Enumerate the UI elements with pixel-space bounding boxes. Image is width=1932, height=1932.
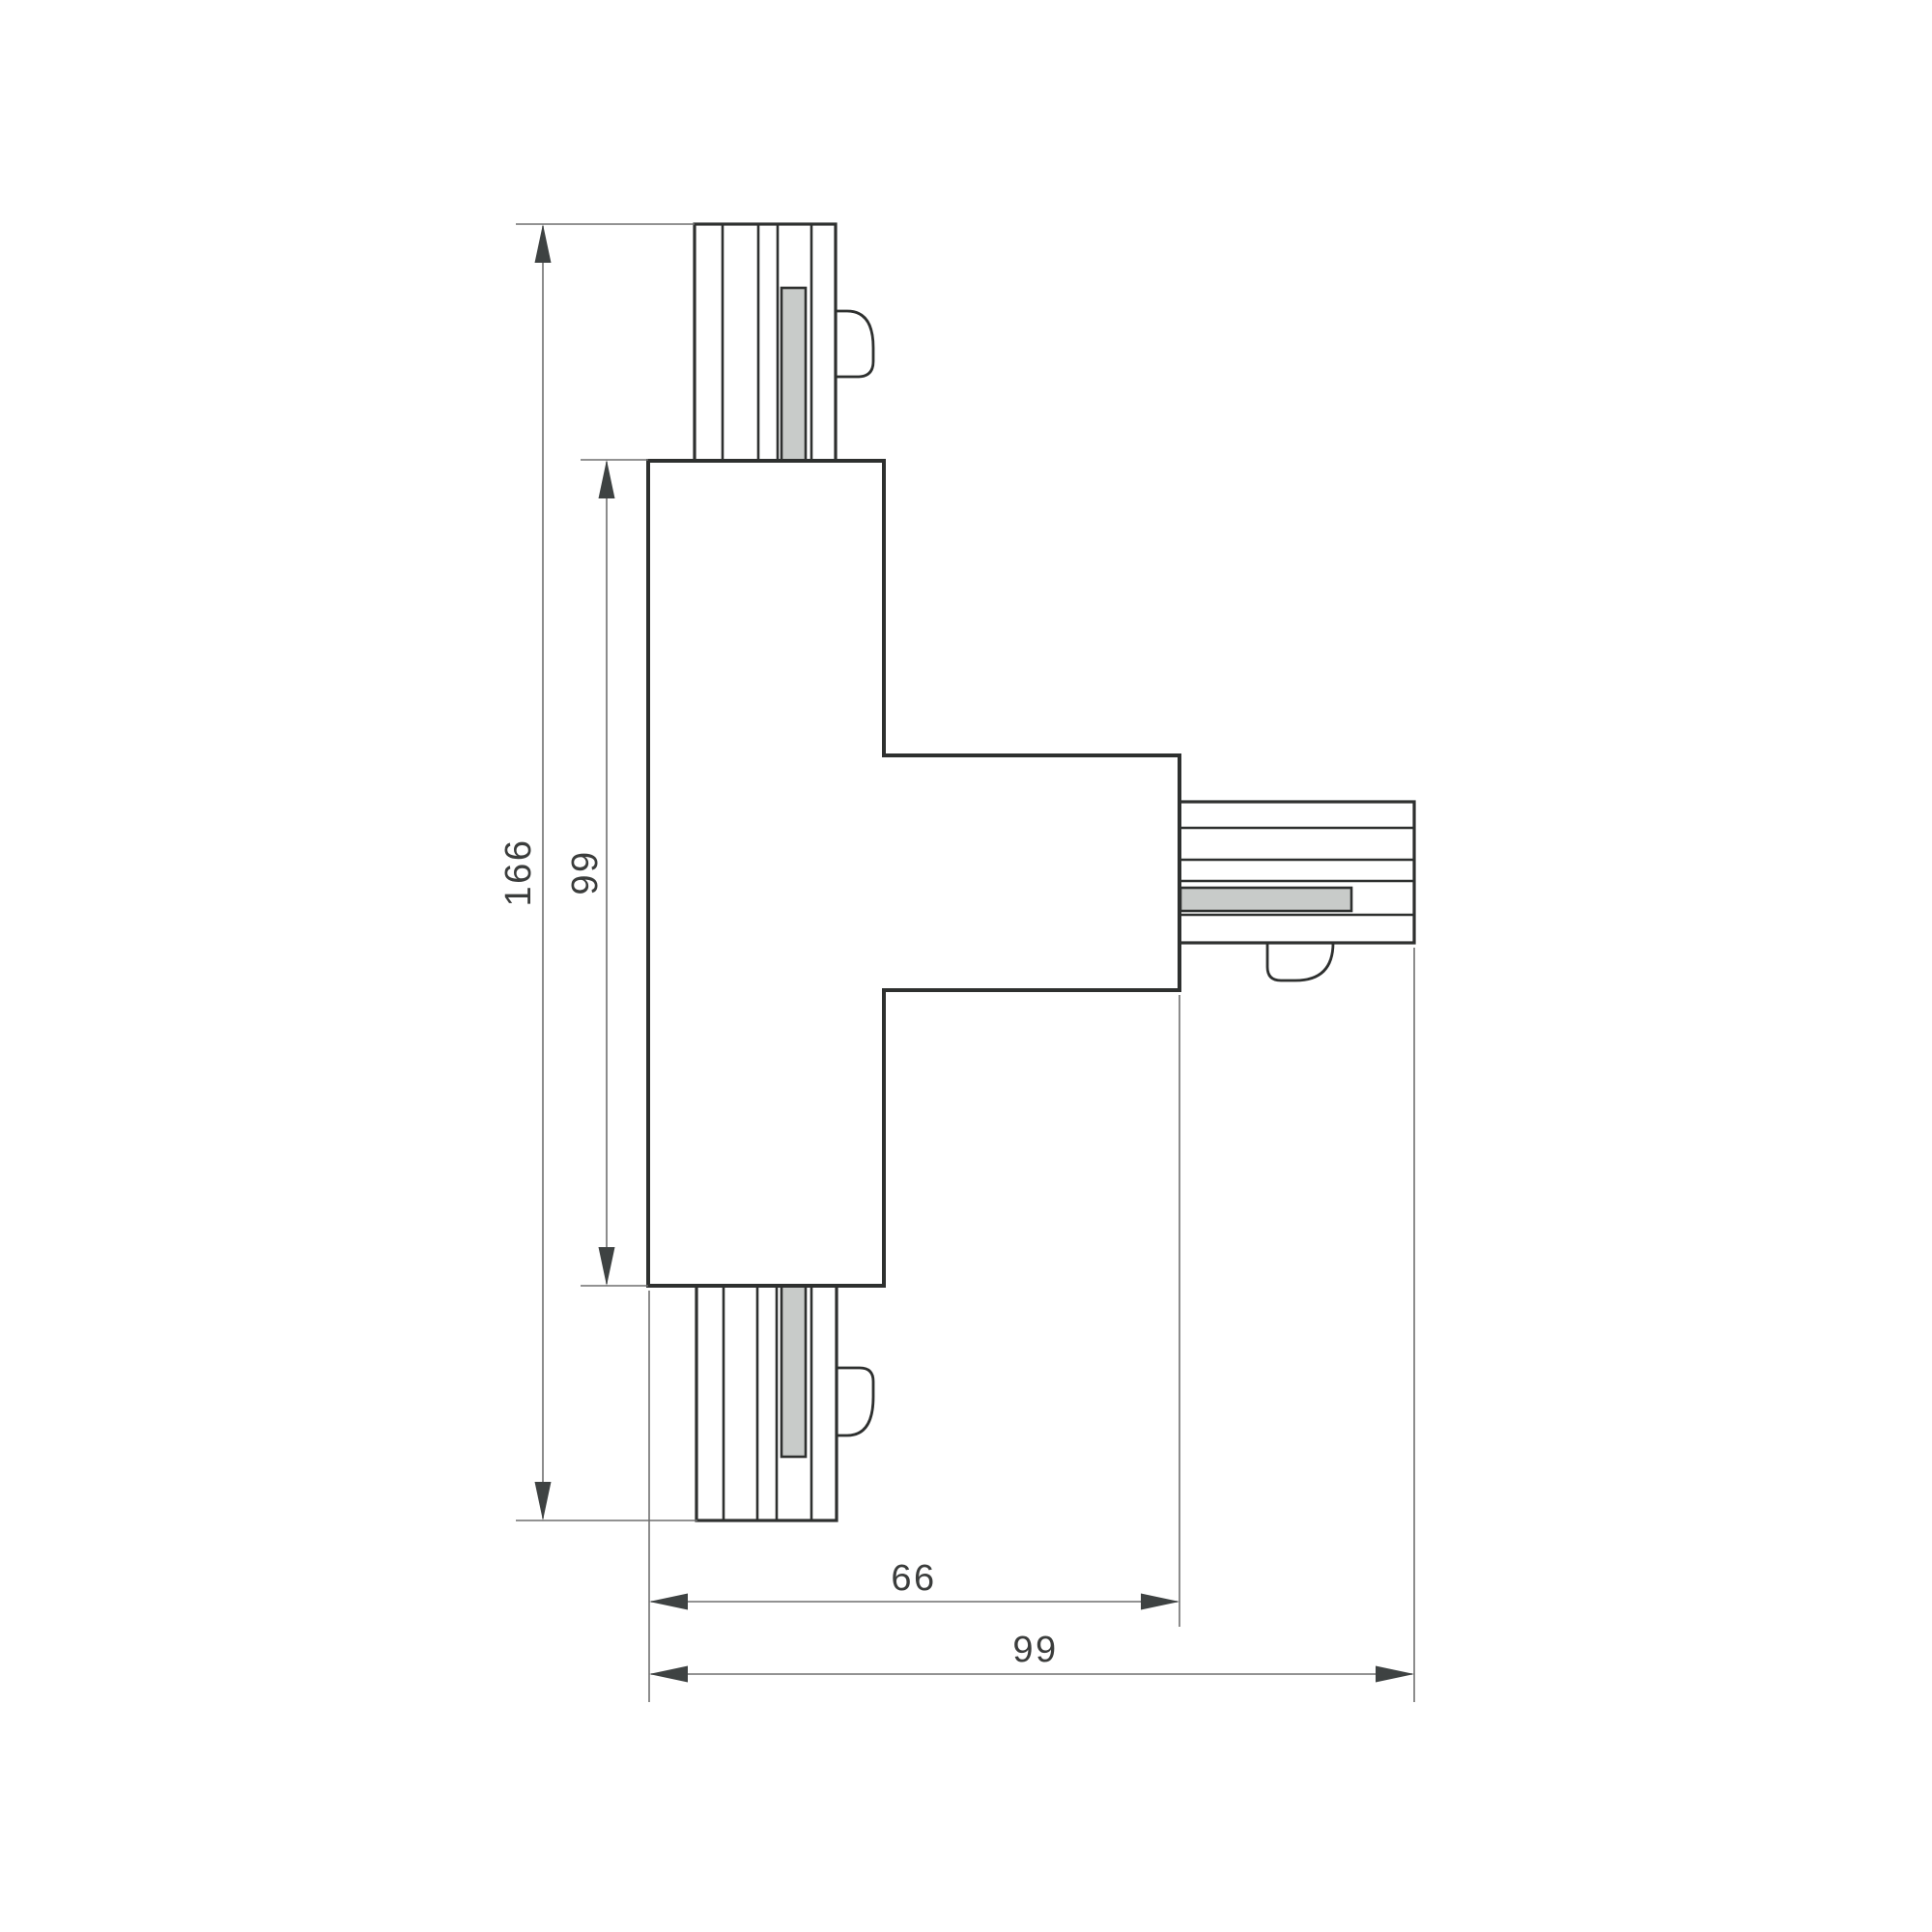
arrow-down-icon (535, 1482, 552, 1520)
top-connector (695, 224, 873, 461)
arrow-left-icon (649, 1594, 688, 1610)
dimension-label-overall-width: 99 (1012, 1630, 1058, 1670)
bottom-contact-insert (781, 1286, 806, 1457)
arrow-right-icon (1376, 1666, 1414, 1683)
arrow-up-icon (535, 224, 552, 263)
arrow-left-icon (649, 1666, 688, 1683)
right-contact-insert (1180, 888, 1351, 911)
arrow-right-icon (1141, 1594, 1179, 1610)
dimension-label-body-height: 99 (565, 849, 606, 895)
right-connector-outline (1179, 802, 1414, 943)
top-connector-latch-tab (836, 311, 873, 377)
arrow-up-icon (599, 460, 615, 498)
dimension-label-overall-height: 166 (498, 838, 539, 907)
arrow-down-icon (599, 1247, 615, 1286)
dimension-body-height: 99 (565, 460, 648, 1286)
dimension-label-body-and-arm-width: 66 (891, 1558, 936, 1599)
right-connector (1179, 802, 1414, 980)
t-body-outline (648, 461, 1179, 1286)
right-connector-latch-tab (1267, 943, 1333, 980)
top-connector-outline (695, 224, 836, 461)
bottom-connector (696, 1286, 873, 1520)
bottom-connector-outline (696, 1286, 837, 1520)
top-contact-insert (781, 288, 806, 461)
technical-drawing: 166 99 66 (0, 0, 1932, 1932)
drawing-canvas: 166 99 66 (0, 0, 1932, 1932)
bottom-connector-latch-tab (837, 1368, 873, 1435)
